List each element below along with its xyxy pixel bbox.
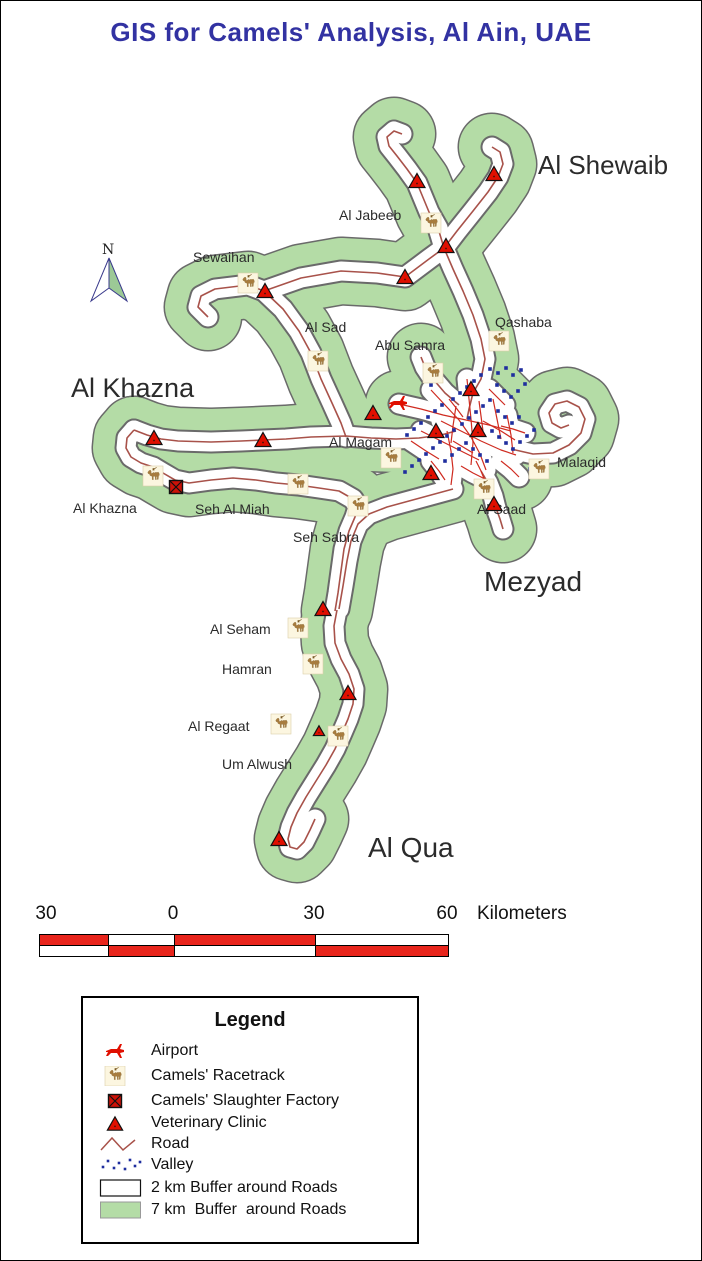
scale-segment bbox=[108, 946, 174, 956]
valley-dot bbox=[517, 415, 521, 419]
map-document: GIS for Camels' Analysis, Al Ain, UAE Al… bbox=[0, 0, 702, 1261]
place-label: Al Shewaib bbox=[538, 150, 668, 180]
valley-dot bbox=[419, 421, 423, 425]
airport-icon bbox=[99, 1041, 143, 1061]
scale-number: 30 bbox=[35, 903, 56, 925]
legend-item-label: Camels' Slaughter Factory bbox=[151, 1092, 339, 1110]
place-label: Qashaba bbox=[495, 314, 552, 330]
valley-dot bbox=[504, 366, 508, 370]
valley-dot bbox=[497, 435, 501, 439]
place-label: Malaqid bbox=[557, 454, 606, 470]
place-label: Al Khazna bbox=[71, 373, 195, 403]
valley-dot bbox=[516, 389, 520, 393]
valley-dot bbox=[478, 453, 482, 457]
valley-dot bbox=[445, 434, 449, 438]
veterinary-clinic-icon bbox=[99, 1113, 143, 1133]
place-label: Al Khazna bbox=[73, 500, 137, 516]
place-label: Al Sad bbox=[305, 319, 346, 335]
racetrack-marker bbox=[423, 363, 443, 383]
racetrack-marker bbox=[303, 654, 323, 674]
scale-segment bbox=[40, 946, 108, 956]
racetrack-marker bbox=[348, 496, 368, 516]
valley-dot bbox=[504, 441, 508, 445]
valley-dot bbox=[490, 429, 494, 433]
legend-item-label: 7 km Buffer around Roads bbox=[151, 1201, 346, 1219]
place-label: Sewaihan bbox=[193, 249, 255, 265]
scale-segment bbox=[108, 935, 174, 945]
valley-dot bbox=[495, 383, 499, 387]
buffer-2km-icon bbox=[99, 1178, 143, 1198]
valley-dot bbox=[426, 415, 430, 419]
valley-dot bbox=[457, 447, 461, 451]
valley-dot bbox=[479, 373, 483, 377]
legend-item-label: Valley bbox=[151, 1156, 193, 1174]
scale-segment bbox=[174, 935, 315, 945]
valley-dot bbox=[443, 459, 447, 463]
racetrack-marker bbox=[421, 213, 441, 233]
scale-bar-bottom-row bbox=[40, 945, 448, 956]
valley-dot bbox=[452, 428, 456, 432]
scale-bar-graphic bbox=[39, 934, 449, 957]
place-label: Seh Sabra bbox=[293, 529, 359, 545]
valley-dot bbox=[525, 434, 529, 438]
scale-segment bbox=[315, 946, 448, 956]
valley-dot bbox=[503, 415, 507, 419]
racetrack-marker bbox=[489, 331, 509, 351]
scale-segment bbox=[40, 935, 108, 945]
valley-dot bbox=[424, 452, 428, 456]
valley-dot bbox=[458, 391, 462, 395]
legend-item-road: Road bbox=[99, 1133, 189, 1155]
valley-dot bbox=[511, 447, 515, 451]
racetrack-marker bbox=[308, 351, 328, 371]
legend-item-label: Camels' Racetrack bbox=[151, 1067, 285, 1085]
scale-bar-top-row bbox=[40, 935, 448, 945]
legend-item-label: Veterinary Clinic bbox=[151, 1114, 267, 1132]
valley-dot bbox=[502, 389, 506, 393]
legend-item-slaughter-factory: Camels' Slaughter Factory bbox=[99, 1090, 339, 1112]
scale-number: 30 bbox=[303, 903, 324, 925]
racetrack-marker bbox=[288, 474, 308, 494]
valley-dot bbox=[472, 379, 476, 383]
legend-item-veterinary-clinic: Veterinary Clinic bbox=[99, 1112, 267, 1134]
racetrack-marker bbox=[381, 448, 401, 468]
valley-dot bbox=[438, 440, 442, 444]
scale-segment bbox=[174, 946, 315, 956]
scale-bar: 30 0 30 60 Kilometers bbox=[39, 903, 679, 965]
valley-dot bbox=[481, 404, 485, 408]
legend-item-label: 2 km Buffer around Roads bbox=[151, 1179, 337, 1197]
valley-dot bbox=[412, 427, 416, 431]
north-arrow-label: N bbox=[102, 242, 114, 258]
place-label: Al Qua bbox=[368, 832, 454, 863]
valley-dot bbox=[519, 368, 523, 372]
valley-dot bbox=[523, 382, 527, 386]
valley-dot bbox=[496, 409, 500, 413]
valley-dot bbox=[471, 447, 475, 451]
legend-item-racetrack: Camels' Racetrack bbox=[99, 1065, 285, 1087]
racetrack-marker bbox=[143, 466, 163, 486]
buffer-7km-icon bbox=[99, 1200, 143, 1220]
place-label: Al Regaat bbox=[188, 718, 250, 734]
legend-title: Legend bbox=[83, 1009, 417, 1032]
valley-dot bbox=[488, 398, 492, 402]
valley-dot bbox=[510, 421, 514, 425]
valley-dot bbox=[488, 367, 492, 371]
valley-dot bbox=[431, 446, 435, 450]
valley-dot bbox=[403, 470, 407, 474]
valley-dot bbox=[518, 440, 522, 444]
valley-dot bbox=[450, 453, 454, 457]
place-label: Al Magam bbox=[329, 434, 392, 450]
valley-dot bbox=[440, 403, 444, 407]
racetrack-marker bbox=[288, 618, 308, 638]
valley-dot bbox=[464, 441, 468, 445]
scale-number: 0 bbox=[168, 903, 179, 925]
valley-dot bbox=[485, 459, 489, 463]
scale-number: 60 bbox=[436, 903, 457, 925]
camel-racetrack-icon bbox=[99, 1066, 143, 1086]
valley-icon bbox=[99, 1155, 143, 1175]
place-label: Mezyad bbox=[484, 566, 582, 597]
slaughter-factory-marker bbox=[170, 481, 183, 494]
valley-dot bbox=[511, 373, 515, 377]
place-label: Hamran bbox=[222, 661, 272, 677]
scale-unit-label: Kilometers bbox=[477, 903, 567, 925]
racetrack-marker bbox=[328, 726, 348, 746]
valley-dot bbox=[417, 458, 421, 462]
valley-dot bbox=[460, 422, 464, 426]
racetrack-marker bbox=[271, 714, 291, 734]
valley-dot bbox=[405, 433, 409, 437]
legend-item-airport: Airport bbox=[99, 1040, 198, 1062]
valley-dot bbox=[474, 410, 478, 414]
place-label: Al Seham bbox=[210, 621, 271, 637]
valley-dot bbox=[433, 409, 437, 413]
valley-dot bbox=[532, 428, 536, 432]
legend-item-label: Road bbox=[151, 1135, 189, 1153]
valley-dot bbox=[509, 395, 513, 399]
valley-dot bbox=[451, 397, 455, 401]
legend-item-buffer-7km: 7 km Buffer around Roads bbox=[99, 1199, 346, 1221]
place-label: Abu Samra bbox=[375, 337, 445, 353]
valley-dot bbox=[496, 371, 500, 375]
north-arrow: N bbox=[91, 242, 127, 301]
legend: Legend Airport Camels' Racetrack Camels'… bbox=[81, 996, 419, 1244]
place-label: Um Alwush bbox=[222, 756, 292, 772]
slaughter-factory-icon bbox=[99, 1091, 143, 1111]
racetrack-marker bbox=[238, 273, 258, 293]
scale-segment bbox=[315, 935, 448, 945]
valley-dot bbox=[410, 464, 414, 468]
valley-dot bbox=[467, 416, 471, 420]
racetrack-marker bbox=[529, 459, 549, 479]
valley-dot bbox=[429, 383, 433, 387]
road-icon bbox=[99, 1134, 143, 1154]
place-label: Seh Al Miah bbox=[195, 501, 270, 517]
legend-item-valley: Valley bbox=[99, 1154, 193, 1176]
place-label: Al Jabeeb bbox=[339, 207, 401, 223]
legend-item-buffer-2km: 2 km Buffer around Roads bbox=[99, 1177, 337, 1199]
legend-item-label: Airport bbox=[151, 1042, 198, 1060]
racetrack-marker bbox=[474, 479, 494, 499]
